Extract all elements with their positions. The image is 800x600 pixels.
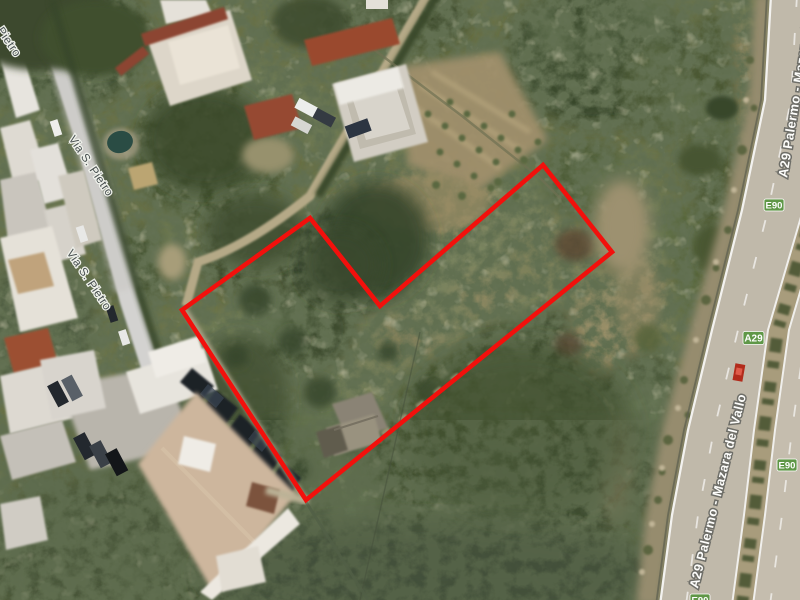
- svg-text:E90: E90: [692, 596, 709, 600]
- svg-text:E90: E90: [779, 461, 796, 472]
- svg-text:A29: A29: [744, 334, 763, 345]
- svg-text:E90: E90: [766, 201, 783, 212]
